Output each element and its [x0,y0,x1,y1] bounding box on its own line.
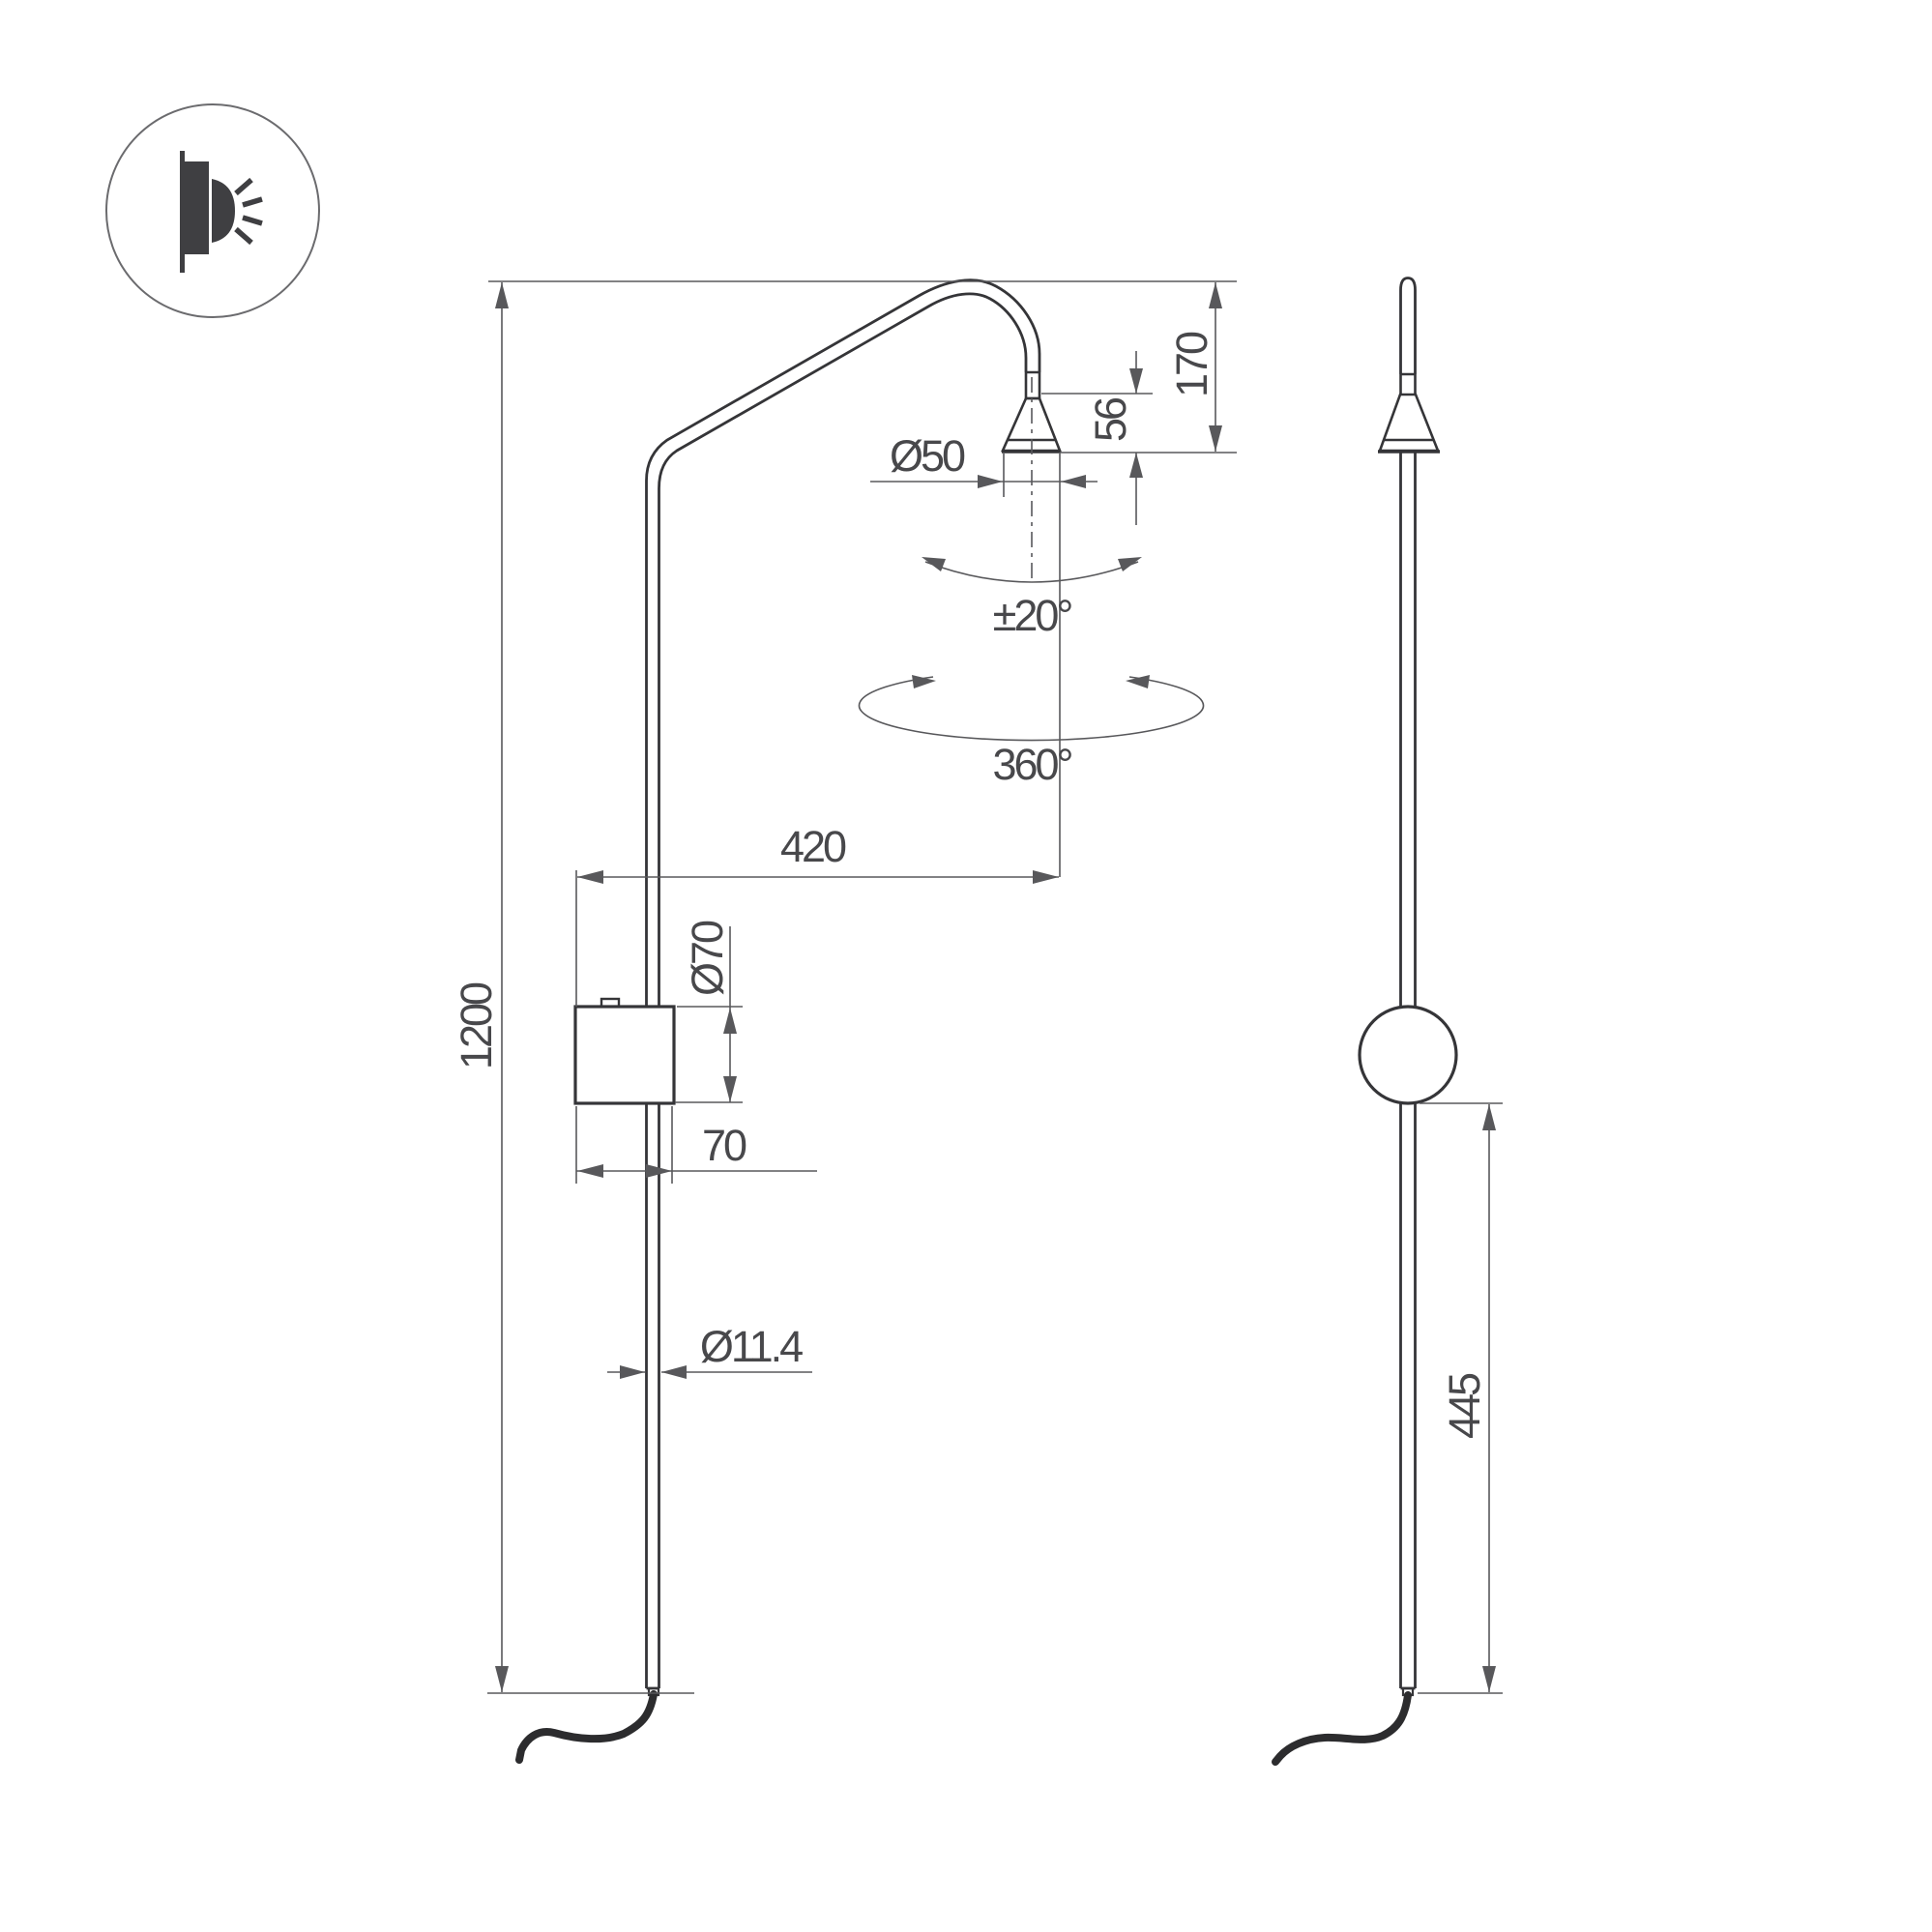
dim-420-label: 420 [780,822,846,871]
side-pole [1401,451,1416,1688]
dim-arm-projection: 420 [576,822,1059,1007]
power-cable-side [1275,1695,1408,1762]
side-view [1275,278,1456,1763]
dim-head-cone-height: 56 [1041,351,1153,525]
dim-d114-label: Ø11.4 [700,1322,803,1371]
dim-170-label: 170 [1167,332,1216,397]
dim-445-label: 445 [1440,1373,1489,1439]
arm-outer-contour [647,280,1040,1007]
side-canopy-circle [1360,1007,1456,1103]
front-view [519,280,1061,1760]
power-cable-front [519,1694,654,1760]
dim-56-label: 56 [1086,397,1135,442]
dim-swivel-label: 360° [992,740,1071,789]
side-arm-tube [1401,278,1416,375]
wall-lamp-dimension-drawing: 1200 170 56 Ø50 ±20° 360° [0,0,1932,1932]
wall-canopy-box [575,1007,674,1103]
dim-pole-diameter: Ø11.4 [607,1322,812,1379]
dim-d50-label: Ø50 [890,431,965,481]
dim-canopy-diameter: Ø70 [675,921,743,1102]
wall-light-icon [106,104,319,317]
dim-1200-label: 1200 [452,982,501,1069]
pole-lower [647,1103,659,1688]
side-head-cone [1380,395,1438,451]
head-joint [1026,372,1039,398]
dim-lower-section: 445 [1418,1103,1503,1693]
icon-lamp-body [185,161,209,254]
arm-inner-contour [659,294,1027,1007]
dim-canopy-width: 70 [576,1106,817,1184]
icon-wall-line [180,151,185,273]
dim-tilt-label: ±20° [993,591,1072,640]
icon-light-rays [236,180,262,243]
side-head-joint [1401,374,1416,395]
dim-swivel-range: 360° [860,675,1204,789]
technical-drawing-page: 1200 170 56 Ø50 ±20° 360° [0,0,1932,1932]
dim-head-diameter: Ø50 [870,431,1098,497]
icon-lamp-diffuser [212,179,235,243]
dim-70-label: 70 [702,1121,746,1170]
dim-d70-label: Ø70 [683,921,732,996]
